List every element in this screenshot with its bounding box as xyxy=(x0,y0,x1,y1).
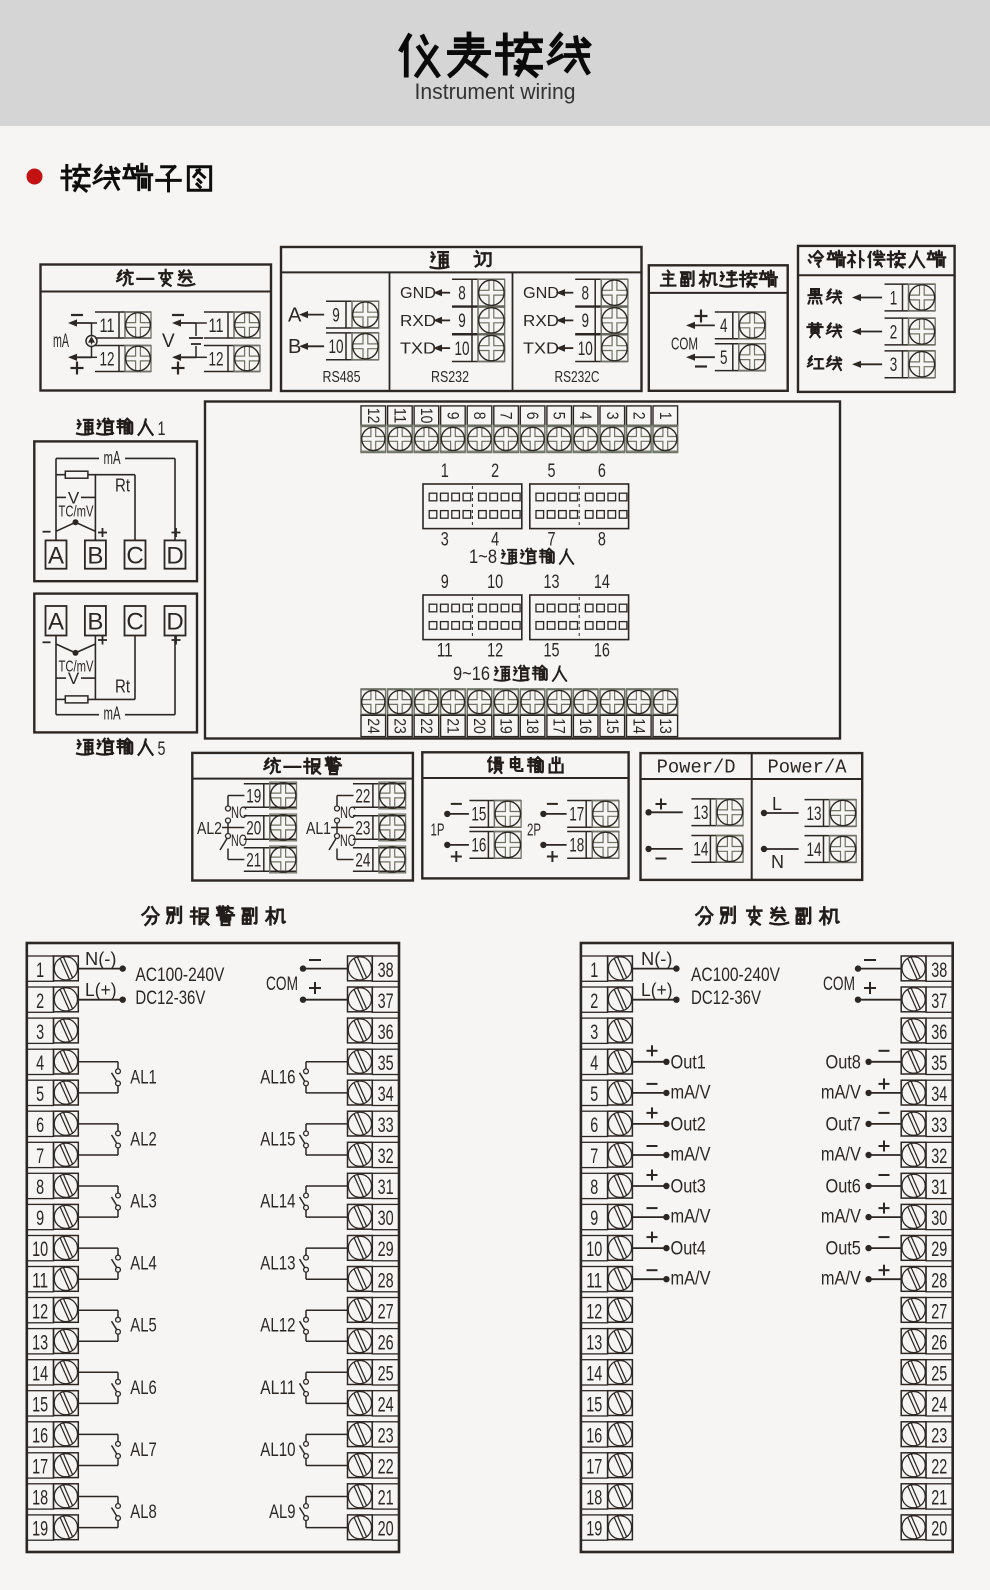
svg-text:38: 38 xyxy=(931,959,947,982)
svg-text:8: 8 xyxy=(458,284,466,305)
svg-text:27: 27 xyxy=(378,1300,394,1323)
svg-text:AL2: AL2 xyxy=(197,818,222,838)
svg-text:19: 19 xyxy=(32,1518,48,1541)
svg-text:9: 9 xyxy=(590,1207,598,1230)
svg-text:1~8: 1~8 xyxy=(469,547,497,568)
svg-text:10: 10 xyxy=(487,572,503,593)
svg-text:10: 10 xyxy=(586,1238,602,1261)
svg-text:21: 21 xyxy=(246,850,261,871)
svg-text:7: 7 xyxy=(590,1145,598,1168)
svg-text:AL6: AL6 xyxy=(130,1378,156,1399)
svg-text:N: N xyxy=(771,852,784,872)
svg-text:TXD: TXD xyxy=(400,341,436,358)
svg-text:mA: mA xyxy=(53,331,69,352)
svg-text:15: 15 xyxy=(544,641,560,662)
svg-text:5: 5 xyxy=(720,348,728,369)
svg-text:7: 7 xyxy=(497,412,516,420)
svg-text:35: 35 xyxy=(931,1052,947,1075)
svg-text:17: 17 xyxy=(586,1456,602,1479)
svg-text:9: 9 xyxy=(441,572,449,593)
svg-text:A: A xyxy=(48,543,64,570)
svg-text:2: 2 xyxy=(629,412,648,420)
svg-text:17: 17 xyxy=(569,805,584,826)
svg-text:15: 15 xyxy=(32,1394,48,1417)
svg-text:11: 11 xyxy=(437,641,453,662)
svg-text:36: 36 xyxy=(378,1021,394,1044)
svg-text:AL8: AL8 xyxy=(130,1502,156,1523)
svg-text:13: 13 xyxy=(32,1331,48,1354)
svg-text:18: 18 xyxy=(32,1487,48,1510)
svg-text:Power/D: Power/D xyxy=(657,757,736,779)
svg-text:V: V xyxy=(68,669,80,688)
svg-text:14: 14 xyxy=(807,840,822,861)
svg-text:GND: GND xyxy=(523,285,559,302)
svg-text:GND: GND xyxy=(400,285,436,302)
svg-text:AL13: AL13 xyxy=(260,1254,295,1275)
svg-text:12: 12 xyxy=(487,641,503,662)
svg-text:Rt: Rt xyxy=(115,677,130,697)
svg-text:AL15: AL15 xyxy=(260,1129,295,1150)
svg-text:mA/V: mA/V xyxy=(821,1207,861,1228)
svg-text:23: 23 xyxy=(355,818,370,839)
svg-text:A: A xyxy=(48,609,64,636)
svg-text:18: 18 xyxy=(569,836,584,857)
svg-text:NO: NO xyxy=(340,832,356,850)
svg-text:30: 30 xyxy=(378,1207,394,1230)
svg-text:NC: NC xyxy=(231,804,247,822)
svg-text:Instrument wiring: Instrument wiring xyxy=(415,79,576,104)
svg-text:3: 3 xyxy=(36,1021,44,1044)
svg-text:2: 2 xyxy=(590,990,598,1013)
svg-text:23: 23 xyxy=(378,1425,394,1448)
svg-text:34: 34 xyxy=(931,1083,947,1106)
svg-text:17: 17 xyxy=(550,718,569,734)
svg-text:38: 38 xyxy=(378,959,394,982)
svg-text:1: 1 xyxy=(441,461,449,482)
svg-text:10: 10 xyxy=(455,339,470,360)
svg-text:21: 21 xyxy=(931,1487,947,1510)
svg-text:16: 16 xyxy=(594,641,610,662)
svg-text:20: 20 xyxy=(378,1518,394,1541)
svg-text:B: B xyxy=(87,543,103,570)
svg-text:13: 13 xyxy=(807,804,822,825)
svg-text:11: 11 xyxy=(390,408,409,424)
svg-text:15: 15 xyxy=(586,1394,602,1417)
svg-text:DC12-36V: DC12-36V xyxy=(135,988,205,1009)
svg-text:11: 11 xyxy=(100,316,115,337)
svg-text:33: 33 xyxy=(378,1114,394,1137)
svg-text:14: 14 xyxy=(586,1363,602,1386)
svg-text:28: 28 xyxy=(378,1269,394,1292)
svg-text:mA/V: mA/V xyxy=(821,1082,861,1103)
svg-text:4: 4 xyxy=(590,1052,598,1075)
svg-text:1: 1 xyxy=(158,419,166,440)
svg-text:AL3: AL3 xyxy=(130,1192,156,1213)
svg-text:D: D xyxy=(166,609,183,636)
svg-text:mA/V: mA/V xyxy=(671,1207,711,1228)
svg-text:AL7: AL7 xyxy=(130,1440,156,1461)
svg-text:21: 21 xyxy=(378,1487,394,1510)
svg-text:2: 2 xyxy=(890,322,898,343)
svg-text:RS232C: RS232C xyxy=(555,369,600,386)
svg-text:TC/mV: TC/mV xyxy=(59,504,94,521)
svg-text:26: 26 xyxy=(931,1331,947,1354)
svg-text:27: 27 xyxy=(931,1300,947,1323)
svg-text:15: 15 xyxy=(603,718,622,734)
svg-text:3: 3 xyxy=(441,530,449,551)
svg-text:Out7: Out7 xyxy=(826,1114,861,1135)
svg-text:11: 11 xyxy=(32,1269,48,1292)
svg-text:24: 24 xyxy=(378,1394,394,1417)
svg-text:AL1: AL1 xyxy=(306,818,331,838)
svg-text:8: 8 xyxy=(470,412,489,420)
svg-text:16: 16 xyxy=(471,836,486,857)
svg-text:6: 6 xyxy=(590,1114,598,1137)
svg-text:12: 12 xyxy=(32,1300,48,1323)
svg-text:19: 19 xyxy=(246,786,261,807)
svg-text:29: 29 xyxy=(378,1238,394,1261)
svg-text:28: 28 xyxy=(931,1269,947,1292)
svg-text:9: 9 xyxy=(458,311,466,332)
svg-text:12: 12 xyxy=(586,1300,602,1323)
svg-text:NO: NO xyxy=(231,832,247,850)
svg-text:25: 25 xyxy=(931,1363,947,1386)
svg-text:COM: COM xyxy=(671,334,698,354)
svg-text:C: C xyxy=(126,609,143,636)
svg-text:8: 8 xyxy=(590,1176,598,1199)
svg-text:3: 3 xyxy=(590,1021,598,1044)
svg-text:RXD: RXD xyxy=(523,313,559,330)
svg-text:12: 12 xyxy=(209,349,224,370)
svg-text:17: 17 xyxy=(32,1456,48,1479)
svg-text:D: D xyxy=(166,543,183,570)
svg-text:8: 8 xyxy=(598,530,606,551)
svg-text:24: 24 xyxy=(931,1394,947,1417)
svg-text:8: 8 xyxy=(36,1176,44,1199)
svg-text:3: 3 xyxy=(890,355,898,376)
svg-text:1: 1 xyxy=(36,959,44,982)
svg-text:AL4: AL4 xyxy=(130,1254,157,1275)
svg-text:11: 11 xyxy=(586,1269,602,1292)
svg-text:37: 37 xyxy=(378,990,394,1013)
svg-text:5: 5 xyxy=(548,461,556,482)
svg-text:V: V xyxy=(162,331,175,352)
svg-text:1: 1 xyxy=(656,412,675,420)
svg-text:9~16: 9~16 xyxy=(453,664,490,685)
svg-text:L(+): L(+) xyxy=(85,980,117,1000)
svg-text:3: 3 xyxy=(603,412,622,420)
svg-text:9: 9 xyxy=(443,412,462,420)
svg-text:12: 12 xyxy=(364,408,383,424)
svg-text:24: 24 xyxy=(355,850,370,871)
svg-text:Out5: Out5 xyxy=(826,1239,861,1260)
svg-text:L(+): L(+) xyxy=(641,980,673,1000)
svg-text:1: 1 xyxy=(590,959,598,982)
svg-text:20: 20 xyxy=(931,1518,947,1541)
svg-text:5: 5 xyxy=(36,1083,44,1106)
svg-text:5: 5 xyxy=(590,1083,598,1106)
svg-text:22: 22 xyxy=(378,1456,394,1479)
svg-text:Out6: Out6 xyxy=(826,1177,861,1198)
svg-text:37: 37 xyxy=(931,990,947,1013)
svg-text:22: 22 xyxy=(355,786,370,807)
svg-text:9: 9 xyxy=(581,311,589,332)
svg-text:12: 12 xyxy=(100,349,115,370)
svg-text:19: 19 xyxy=(497,718,516,734)
svg-text:mA/V: mA/V xyxy=(671,1145,711,1166)
svg-text:N(-): N(-) xyxy=(641,949,673,969)
svg-text:29: 29 xyxy=(931,1238,947,1261)
svg-text:20: 20 xyxy=(470,718,489,734)
svg-text:AL12: AL12 xyxy=(260,1316,295,1337)
svg-text:6: 6 xyxy=(598,461,606,482)
svg-text:7: 7 xyxy=(36,1145,44,1168)
svg-text:16: 16 xyxy=(576,718,595,734)
svg-text:TXD: TXD xyxy=(523,341,559,358)
svg-text:14: 14 xyxy=(594,572,610,593)
svg-text:RS485: RS485 xyxy=(323,369,361,386)
svg-text:33: 33 xyxy=(931,1114,947,1137)
svg-text:9: 9 xyxy=(36,1207,44,1230)
svg-text:Out2: Out2 xyxy=(671,1114,706,1135)
svg-text:mA/V: mA/V xyxy=(671,1269,711,1290)
svg-text:AL9: AL9 xyxy=(269,1502,295,1523)
svg-text:L: L xyxy=(772,794,782,814)
svg-text:13: 13 xyxy=(544,572,560,593)
svg-text:14: 14 xyxy=(629,718,648,734)
svg-text:mA: mA xyxy=(104,448,121,468)
svg-text:24: 24 xyxy=(364,718,383,734)
svg-text:19: 19 xyxy=(586,1518,602,1541)
svg-text:26: 26 xyxy=(378,1331,394,1354)
svg-text:C: C xyxy=(126,543,143,570)
svg-text:mA: mA xyxy=(104,704,121,724)
svg-text:Out1: Out1 xyxy=(671,1052,706,1073)
svg-text:22: 22 xyxy=(417,718,436,734)
svg-text:AL2: AL2 xyxy=(130,1129,156,1150)
svg-text:B: B xyxy=(288,336,301,358)
svg-text:DC12-36V: DC12-36V xyxy=(691,988,761,1009)
svg-text:25: 25 xyxy=(378,1363,394,1386)
svg-text:10: 10 xyxy=(417,408,436,424)
svg-text:COM: COM xyxy=(266,974,298,995)
svg-text:18: 18 xyxy=(523,718,542,734)
svg-text:16: 16 xyxy=(586,1425,602,1448)
svg-text:6: 6 xyxy=(36,1114,44,1137)
svg-text:31: 31 xyxy=(378,1176,394,1199)
svg-text:15: 15 xyxy=(471,805,486,826)
svg-text:36: 36 xyxy=(931,1021,947,1044)
svg-text:AL11: AL11 xyxy=(260,1378,295,1399)
svg-text:N(-): N(-) xyxy=(85,949,117,969)
svg-text:8: 8 xyxy=(581,284,589,305)
svg-text:14: 14 xyxy=(32,1363,48,1386)
svg-text:13: 13 xyxy=(656,718,675,734)
svg-text:23: 23 xyxy=(390,718,409,734)
svg-text:20: 20 xyxy=(246,818,261,839)
svg-text:32: 32 xyxy=(931,1145,947,1168)
svg-text:1P: 1P xyxy=(431,820,445,840)
svg-text:2: 2 xyxy=(36,990,44,1013)
svg-text:4: 4 xyxy=(36,1052,44,1075)
svg-text:21: 21 xyxy=(443,718,462,734)
svg-text:30: 30 xyxy=(931,1207,947,1230)
svg-text:13: 13 xyxy=(693,803,708,824)
svg-text:5: 5 xyxy=(550,412,569,420)
svg-text:5: 5 xyxy=(158,739,166,760)
svg-text:34: 34 xyxy=(378,1083,394,1106)
svg-text:NC: NC xyxy=(340,804,356,822)
svg-text:mA/V: mA/V xyxy=(671,1082,711,1103)
svg-text:RXD: RXD xyxy=(400,313,436,330)
svg-text:16: 16 xyxy=(32,1425,48,1448)
svg-text:AC100-240V: AC100-240V xyxy=(691,965,780,986)
svg-text:mA/V: mA/V xyxy=(821,1145,861,1166)
svg-text:11: 11 xyxy=(209,316,224,337)
svg-text:9: 9 xyxy=(332,305,340,326)
svg-text:Power/A: Power/A xyxy=(768,757,848,779)
svg-text:22: 22 xyxy=(931,1456,947,1479)
svg-text:23: 23 xyxy=(931,1425,947,1448)
svg-text:10: 10 xyxy=(578,339,593,360)
svg-text:32: 32 xyxy=(378,1145,394,1168)
svg-text:Out4: Out4 xyxy=(671,1239,707,1260)
svg-text:AL16: AL16 xyxy=(260,1067,295,1088)
svg-text:AL14: AL14 xyxy=(260,1192,296,1213)
svg-text:31: 31 xyxy=(931,1176,947,1199)
svg-text:2P: 2P xyxy=(527,820,541,840)
svg-text:B: B xyxy=(87,609,103,636)
svg-text:AL5: AL5 xyxy=(130,1316,156,1337)
svg-text:14: 14 xyxy=(693,840,708,861)
svg-text:35: 35 xyxy=(378,1052,394,1075)
svg-text:4: 4 xyxy=(576,412,595,420)
svg-text:Out8: Out8 xyxy=(826,1052,861,1073)
svg-text:2: 2 xyxy=(491,461,499,482)
svg-text:mA/V: mA/V xyxy=(821,1269,861,1290)
svg-text:13: 13 xyxy=(586,1331,602,1354)
svg-text:AC100-240V: AC100-240V xyxy=(135,965,224,986)
svg-text:A: A xyxy=(288,305,302,327)
svg-text:18: 18 xyxy=(586,1487,602,1510)
svg-text:6: 6 xyxy=(523,412,542,420)
svg-text:AL10: AL10 xyxy=(260,1440,295,1461)
svg-text:COM: COM xyxy=(823,974,855,995)
svg-text:4: 4 xyxy=(720,316,728,337)
svg-text:Rt: Rt xyxy=(115,476,130,496)
svg-text:7: 7 xyxy=(548,530,556,551)
svg-text:10: 10 xyxy=(32,1238,48,1261)
svg-text:10: 10 xyxy=(329,337,344,358)
svg-text:RS232: RS232 xyxy=(431,369,469,386)
svg-text:AL1: AL1 xyxy=(130,1067,156,1088)
svg-text:1: 1 xyxy=(890,288,898,309)
svg-text:Out3: Out3 xyxy=(671,1177,706,1198)
